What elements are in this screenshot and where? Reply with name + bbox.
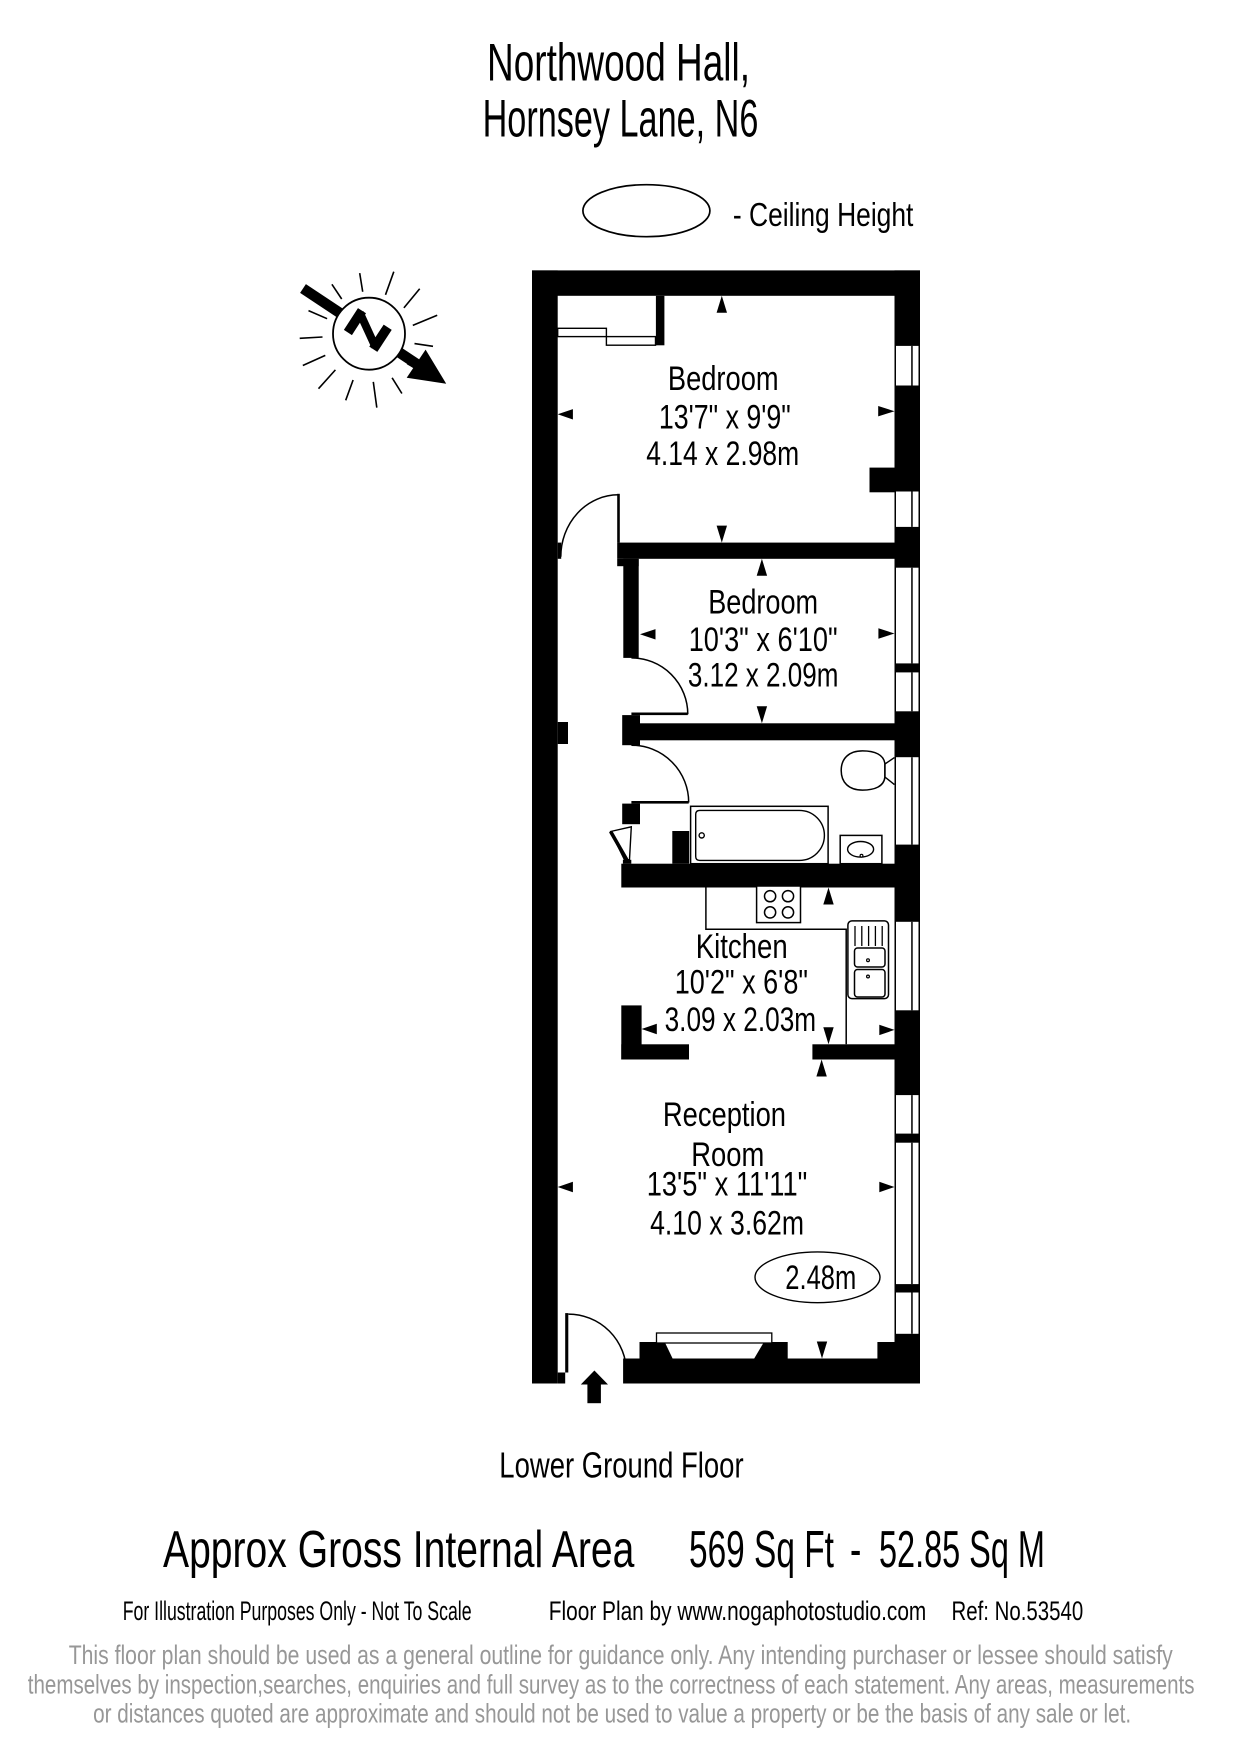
svg-text:For Illustration Purposes Only: For Illustration Purposes Only - Not To … [123,1596,472,1626]
svg-text:2.48m: 2.48m [785,1259,856,1297]
svg-text:Lower Ground Floor: Lower Ground Floor [499,1444,743,1485]
svg-text:Ref: No.53540: Ref: No.53540 [952,1596,1084,1626]
svg-text:or distances quoted are approx: or distances quoted are approximate and … [93,1699,1131,1729]
svg-text:13'7" x 9'9": 13'7" x 9'9" [659,399,791,437]
svg-text:10'3" x 6'10": 10'3" x 6'10" [689,621,838,659]
svg-text:569 Sq Ft: 569 Sq Ft [689,1521,834,1579]
svg-text:Bedroom: Bedroom [668,360,779,398]
svg-text:4.14 x 2.98m: 4.14 x 2.98m [646,435,799,473]
svg-text:This floor plan should be used: This floor plan should be used as a gene… [69,1640,1174,1670]
svg-text:Reception: Reception [663,1096,786,1134]
svg-text:themselves by inspection,searc: themselves by inspection,searches, enqui… [28,1670,1195,1700]
svg-text:Approx Gross Internal Area: Approx Gross Internal Area [163,1521,634,1579]
svg-text:3.12 x 2.09m: 3.12 x 2.09m [688,657,839,695]
svg-text:3.09 x 2.03m: 3.09 x 2.03m [665,1001,817,1039]
svg-text:- Ceiling Height: - Ceiling Height [733,196,914,233]
svg-text:Floor Plan by www.nogaphotostu: Floor Plan by www.nogaphotostudio.com [549,1596,927,1626]
svg-text:10'2" x 6'8": 10'2" x 6'8" [675,964,808,1002]
svg-text:4.10 x 3.62m: 4.10 x 3.62m [650,1205,804,1243]
svg-text:Bedroom: Bedroom [708,584,818,622]
svg-text:Hornsey Lane, N6: Hornsey Lane, N6 [483,90,759,149]
svg-text:-: - [850,1521,861,1579]
svg-text:52.85 Sq M: 52.85 Sq M [879,1521,1045,1579]
svg-text:Kitchen: Kitchen [696,928,788,966]
svg-text:13'5" x 11'11": 13'5" x 11'11" [647,1166,808,1204]
svg-text:Northwood Hall,: Northwood Hall, [487,33,750,92]
